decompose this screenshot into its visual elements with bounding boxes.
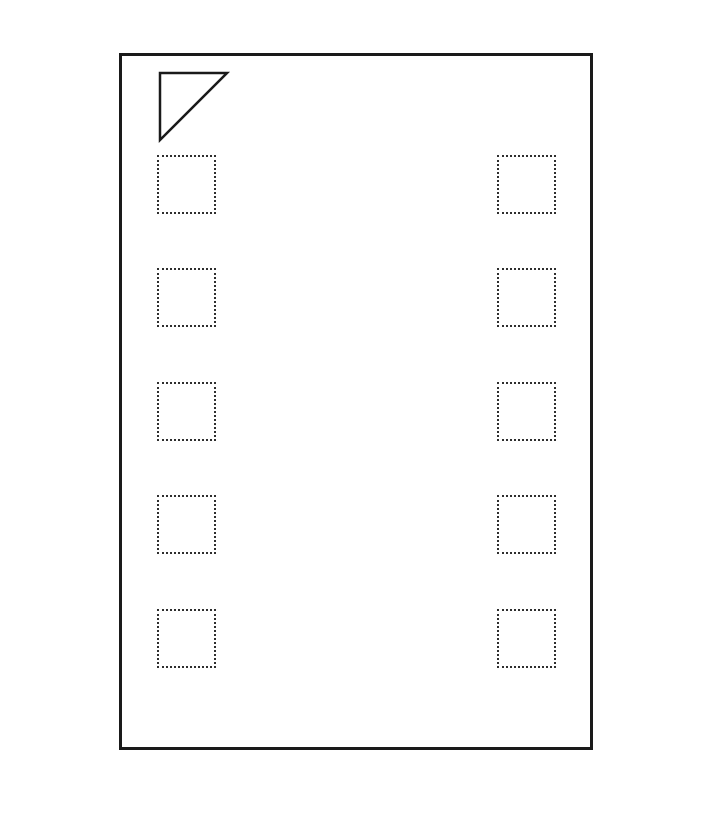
pad-right-3 [497, 382, 556, 441]
pad-right-2 [497, 268, 556, 327]
package-outline-rectangle [119, 53, 593, 750]
pad-right-5 [497, 609, 556, 668]
pad-left-1 [157, 155, 216, 214]
pad-left-3 [157, 382, 216, 441]
pin1-triangle-shape [160, 73, 227, 140]
pad-right-1 [497, 155, 556, 214]
pad-left-4 [157, 495, 216, 554]
diagram-canvas [0, 0, 719, 827]
pad-left-2 [157, 268, 216, 327]
pad-left-5 [157, 609, 216, 668]
pad-right-4 [497, 495, 556, 554]
